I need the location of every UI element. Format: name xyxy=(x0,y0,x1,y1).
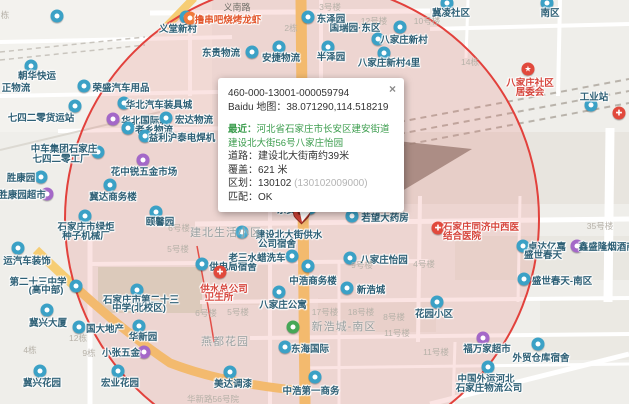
poi-label[interactable]: 半泽园 xyxy=(317,49,346,63)
poi-label[interactable]: 七四二零货运站 xyxy=(8,110,75,124)
building-label: 3号楼 xyxy=(319,1,341,13)
poi-label[interactable]: 石家庄物流公司 xyxy=(456,380,523,394)
building-label: 9号楼 xyxy=(351,259,373,271)
poi-icon[interactable] xyxy=(70,280,83,293)
poi-icon[interactable]: ✚ xyxy=(214,266,227,279)
poi-label[interactable]: 运汽车装饰 xyxy=(3,253,51,267)
poi-icon[interactable] xyxy=(286,250,299,263)
poi-label[interactable]: 八家庄新村 xyxy=(380,32,428,46)
poi-label[interactable]: 正物流 xyxy=(2,80,31,94)
building-label: 12栋 xyxy=(69,332,87,344)
poi-label[interactable]: (高中部) xyxy=(29,282,64,296)
poi-icon[interactable] xyxy=(287,321,300,334)
building-label: 6号楼 xyxy=(195,307,217,319)
building-label: 35号楼 xyxy=(587,220,613,232)
building-label: 6号楼 xyxy=(168,222,190,234)
poi-label[interactable]: 华北汽车装具城 xyxy=(126,97,193,111)
poi-icon[interactable] xyxy=(196,258,209,271)
area-label: 建北生活小区 xyxy=(190,224,262,240)
poi-label[interactable]: 冀达商务楼 xyxy=(89,189,137,203)
poi-label[interactable]: 冀兴花园 xyxy=(23,375,61,389)
poi-label[interactable]: 八家庄公寓 xyxy=(259,297,307,311)
building-label: 14栋 xyxy=(461,56,479,68)
road-label: 义南路 xyxy=(223,1,250,14)
poi-label[interactable]: 八家庄新村4里 xyxy=(358,55,420,69)
info-popup: × 460-000-13001-000059794 Baidu 地图：38.07… xyxy=(218,78,404,212)
poi-label[interactable]: 胜康园 xyxy=(7,170,36,184)
building-label: 5号楼 xyxy=(167,243,189,255)
poi-icon[interactable] xyxy=(78,80,91,93)
poi-icon[interactable] xyxy=(51,10,64,23)
poi-label[interactable]: 福万家超市 xyxy=(463,341,511,355)
poi-label[interactable]: 益利沪泰电焊机 xyxy=(149,130,216,144)
poi-label[interactable]: 外贸仓库宿舍 xyxy=(512,350,569,364)
building-label: 10号楼 xyxy=(414,15,440,27)
poi-label[interactable]: 撸串吧烧烤龙虾 xyxy=(195,12,262,26)
poi-label[interactable]: 居委会 xyxy=(516,84,545,98)
building-label: 9栋 xyxy=(82,347,95,359)
poi-label[interactable]: 花园小区 xyxy=(415,306,453,320)
poi-label[interactable]: 荣盛汽车用品 xyxy=(92,80,149,94)
poi-label[interactable]: 新浩城 xyxy=(357,282,386,296)
poi-label[interactable]: 华新园 xyxy=(129,329,158,343)
building-label: 5号楼 xyxy=(227,306,249,318)
building-label: 华新路56号院 xyxy=(187,393,239,404)
poi-label[interactable]: 冀兴大厦 xyxy=(29,315,67,329)
poi-label[interactable]: 工业站 xyxy=(580,89,609,103)
poi-label[interactable]: 若望大药房 xyxy=(361,210,409,224)
poi-icon[interactable] xyxy=(341,282,354,295)
area-label: 燕都花园 xyxy=(201,333,249,349)
poi-label[interactable]: 宏业花园 xyxy=(101,375,139,389)
poi-label[interactable]: 美达调漆 xyxy=(214,376,252,390)
poi-icon[interactable]: ★ xyxy=(522,63,535,76)
poi-label[interactable]: 东海国际 xyxy=(291,341,329,355)
building-label: 2栋 xyxy=(284,22,297,34)
poi-label[interactable]: 卫生所 xyxy=(205,289,234,303)
popup-district-line: 区划：130102 (130102009000) xyxy=(228,177,394,191)
poi-icon[interactable] xyxy=(122,122,135,135)
poi-icon[interactable]: ✚ xyxy=(613,107,626,120)
building-label: 12号楼 xyxy=(361,15,387,27)
poi-label[interactable]: 鑫盛隆烟酒商行 xyxy=(579,239,629,253)
poi-label[interactable]: 胜康园超市 xyxy=(0,187,46,201)
area-label: 新浩城-南区 xyxy=(312,318,377,334)
poi-icon[interactable] xyxy=(302,11,315,24)
poi-label[interactable]: 中学(北校区) xyxy=(112,300,166,314)
map-canvas[interactable]: 义堂新村国瑞园·东区撸串吧烧烤龙虾八家庄新村八家庄新村4里东泽园半泽园东贵物流安… xyxy=(0,0,629,404)
poi-icon[interactable] xyxy=(279,341,292,354)
poi-label[interactable]: 国大地产 xyxy=(86,321,124,335)
poi-label[interactable]: 老三水蜡洗车 xyxy=(228,250,285,264)
building-label: 18号楼 xyxy=(348,306,374,318)
poi-label[interactable]: 花中锐五金市场 xyxy=(111,164,178,178)
building-label: 8号楼 xyxy=(383,311,405,323)
popup-baidu-coords: Baidu 地图：38.071290,114.518219 xyxy=(228,101,394,115)
poi-icon[interactable] xyxy=(302,260,315,273)
popup-match-line: 匹配：OK xyxy=(228,191,394,205)
building-label: 17号楼 xyxy=(312,306,338,318)
poi-icon[interactable] xyxy=(309,371,322,384)
popup-road-line: 道路：建设北大街南约39米 xyxy=(228,150,394,164)
poi-label[interactable]: 中浩商务楼 xyxy=(289,273,337,287)
popup-district-code: (130102009000) xyxy=(294,178,367,189)
popup-spacer xyxy=(228,114,394,123)
poi-label[interactable]: 小张五金 xyxy=(102,345,140,359)
building-label: 4号楼 xyxy=(413,258,435,270)
building-label: 栋 xyxy=(1,9,10,21)
poi-label[interactable]: 盛世春天-南区 xyxy=(532,273,592,287)
close-icon[interactable]: × xyxy=(389,83,396,95)
poi-label[interactable]: 东贵物流 xyxy=(202,45,240,59)
popup-id-line: 460-000-13001-000059794 xyxy=(228,87,394,101)
poi-label[interactable]: 种子机械厂 xyxy=(62,228,110,242)
building-label: 4栋 xyxy=(23,344,36,356)
popup-nearest-address: 最近：河北省石家庄市长安区建安街道建设北大街56号八家庄怡园 xyxy=(228,123,394,150)
poi-icon[interactable] xyxy=(246,46,259,59)
poi-icon[interactable] xyxy=(107,113,120,126)
popup-coverage-line: 覆盖：621 米 xyxy=(228,164,394,178)
poi-label[interactable]: 结合医院 xyxy=(443,228,481,242)
poi-label[interactable]: 安捷物流 xyxy=(262,50,300,64)
poi-label[interactable]: 南区 xyxy=(540,5,559,19)
poi-label[interactable]: 七四二零工厂 xyxy=(32,151,89,165)
building-label: 11号楼 xyxy=(384,327,410,339)
poi-icon[interactable] xyxy=(518,273,531,286)
popup-nearest-label: 最近： xyxy=(228,124,257,135)
poi-icon[interactable] xyxy=(532,338,545,351)
poi-label[interactable]: 盛世春天 xyxy=(524,247,562,261)
poi-label[interactable]: 东泽园 xyxy=(317,11,346,25)
poi-label[interactable]: 中浩第一商务 xyxy=(282,383,339,397)
poi-icon[interactable] xyxy=(35,171,48,184)
popup-district-main: 区划：130102 xyxy=(228,178,294,189)
poi-label[interactable]: 宏达物流 xyxy=(175,112,213,126)
poi-label[interactable]: 公司宿舍 xyxy=(258,236,296,250)
building-label: 11号楼 xyxy=(423,346,449,358)
